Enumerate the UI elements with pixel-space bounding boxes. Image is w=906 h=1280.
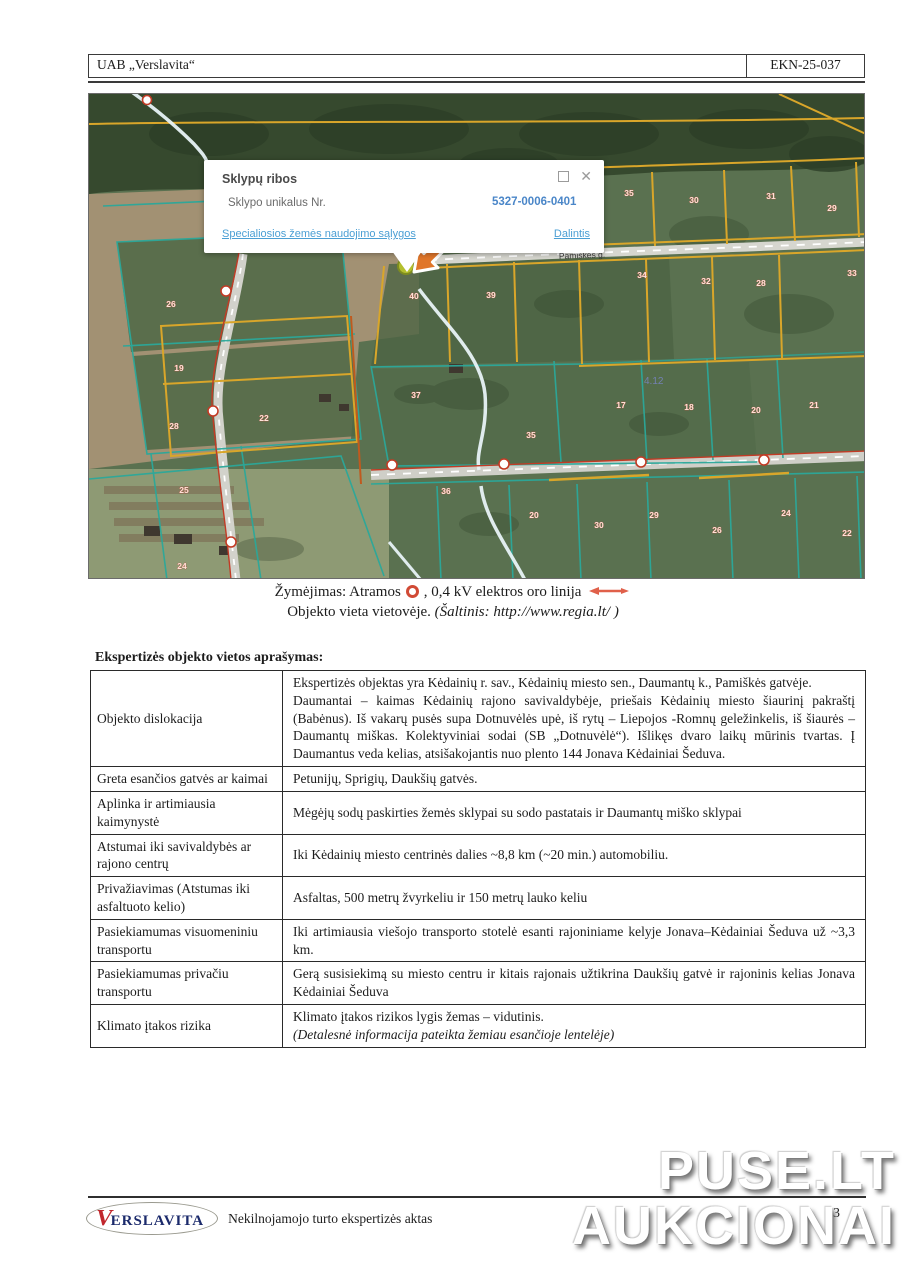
parcel-number: 26 (712, 525, 722, 535)
parcel-number: 26 (166, 299, 176, 309)
popup-window-controls: ✕ (558, 169, 592, 183)
row-label: Objekto dislokacija (91, 671, 283, 767)
parcel-number: 28 (756, 278, 766, 288)
parcel-number: 20 (529, 510, 539, 520)
row-label: Pasiekiamumas privačiu transportu (91, 962, 283, 1005)
parcel-number: 32 (701, 276, 711, 286)
pole-legend-icon (406, 585, 419, 598)
row-label: Pasiekiamumas visuomeniniu transportu (91, 919, 283, 962)
watermark-line1: PUSE.LT (572, 1144, 896, 1199)
parcel-number: 25 (179, 485, 189, 495)
table-row: Privažiavimas (Atstumas iki asfaltuoto k… (91, 877, 866, 920)
table-row: Atstumai iki savivaldybės ar rajono cent… (91, 834, 866, 877)
parcel-number: 31 (766, 191, 776, 201)
table-row: Pasiekiamumas privačiu transportu Gerą s… (91, 962, 866, 1005)
parcel-number: 34 (637, 270, 647, 280)
caption-marking-prefix: Žymėjimas: Atramos (275, 584, 401, 600)
document-code: EKN-25-037 (746, 55, 864, 77)
parcel-number: 36 (441, 486, 451, 496)
row-label: Atstumai iki savivaldybės ar rajono cent… (91, 834, 283, 877)
maximize-icon[interactable] (558, 171, 569, 182)
special-conditions-link[interactable]: Specialiosios žemės naudojimo sąlygos (222, 228, 416, 240)
table-row: Aplinka ir artimiausia kaimynystė Mėgėjų… (91, 791, 866, 834)
parcel-number: 21 (809, 400, 819, 410)
caption-source: (Šaltinis: http://www.regia.lt/ ) (435, 604, 619, 620)
page-footer: VERSLAVITA Nekilnojamojo turto ekspertiz… (86, 1202, 432, 1235)
parcel-number: 24 (781, 508, 791, 518)
parcel-number: 29 (827, 203, 837, 213)
parcel-id-label: Sklypo unikalus Nr. (228, 197, 326, 209)
parcel-number: 30 (594, 520, 604, 530)
header-rule (88, 81, 865, 83)
verslavita-logo: VERSLAVITA (86, 1202, 218, 1235)
parcel-number: 39 (486, 290, 496, 300)
row-label: Aplinka ir artimiausia kaimynystė (91, 791, 283, 834)
popup-title: Sklypų ribos (222, 172, 297, 186)
map-popup: Sklypų ribos ✕ Sklypo unikalus Nr. 5327-… (204, 160, 604, 253)
row-label: Privažiavimas (Atstumas iki asfaltuoto k… (91, 877, 283, 920)
parcel-number: 19 (174, 363, 184, 373)
caption-marking-suffix: , 0,4 kV elektros oro linija (424, 584, 582, 600)
parcel-number: 35 (624, 188, 634, 198)
share-link[interactable]: Dalintis (554, 228, 590, 240)
footer-document-title: Nekilnojamojo turto ekspertizės aktas (228, 1211, 432, 1227)
table-row: Klimato įtakos rizika Klimato įtakos riz… (91, 1005, 866, 1048)
caption-line2: Objekto vieta vietovėje. (Šaltinis: http… (0, 603, 906, 623)
parcel-id-value[interactable]: 5327-0006-0401 (492, 196, 576, 208)
parcel-number: 20 (751, 405, 761, 415)
cadastral-map-image: 3530312934322833403937171820212619282225… (88, 93, 865, 579)
parcel-number: 30 (689, 195, 699, 205)
parcel-number: 18 (684, 402, 694, 412)
parcel-number: 17 (616, 400, 626, 410)
close-icon[interactable]: ✕ (580, 169, 592, 183)
description-table: Objekto dislokacija Ekspertizės objektas… (90, 670, 866, 1048)
watermark: PUSE.LT AUKCIONAI (572, 1144, 896, 1254)
parcel-number: 28 (169, 421, 179, 431)
logo-wordmark: ERSLAVITA (111, 1213, 204, 1229)
parcel-number: 40 (409, 291, 419, 301)
area-label: 4.12 (644, 376, 664, 387)
document-header: UAB „Verslavita“ EKN-25-037 (88, 54, 865, 78)
row-label: Klimato įtakos rizika (91, 1005, 283, 1048)
table-row: Pasiekiamumas visuomeniniu transportu Ik… (91, 919, 866, 962)
watermark-line2: AUKCIONAI (572, 1199, 896, 1254)
row-label: Greta esančios gatvės ar kaimai (91, 767, 283, 792)
popup-pointer-tail (392, 251, 422, 272)
table-row: Objekto dislokacija Ekspertizės objektas… (91, 671, 866, 767)
map-caption: Žymėjimas: Atramos, 0,4 kV elektros oro … (0, 583, 906, 622)
parcel-number: 33 (847, 268, 857, 278)
parcel-number: 35 (526, 430, 536, 440)
table-row: Greta esančios gatvės ar kaimai Petunijų… (91, 767, 866, 792)
parcel-number: 22 (259, 413, 269, 423)
parcel-number: 24 (177, 561, 187, 571)
parcel-number: 37 (411, 390, 421, 400)
caption-location: Objekto vieta vietovėje. (287, 604, 431, 620)
parcel-number: 22 (842, 528, 852, 538)
parcel-number: 29 (649, 510, 659, 520)
company-name: UAB „Verslavita“ (89, 55, 746, 77)
section-heading: Ekspertizės objekto vietos aprašymas: (95, 650, 323, 666)
powerline-legend-icon (587, 585, 631, 597)
caption-line1: Žymėjimas: Atramos, 0,4 kV elektros oro … (0, 583, 906, 603)
